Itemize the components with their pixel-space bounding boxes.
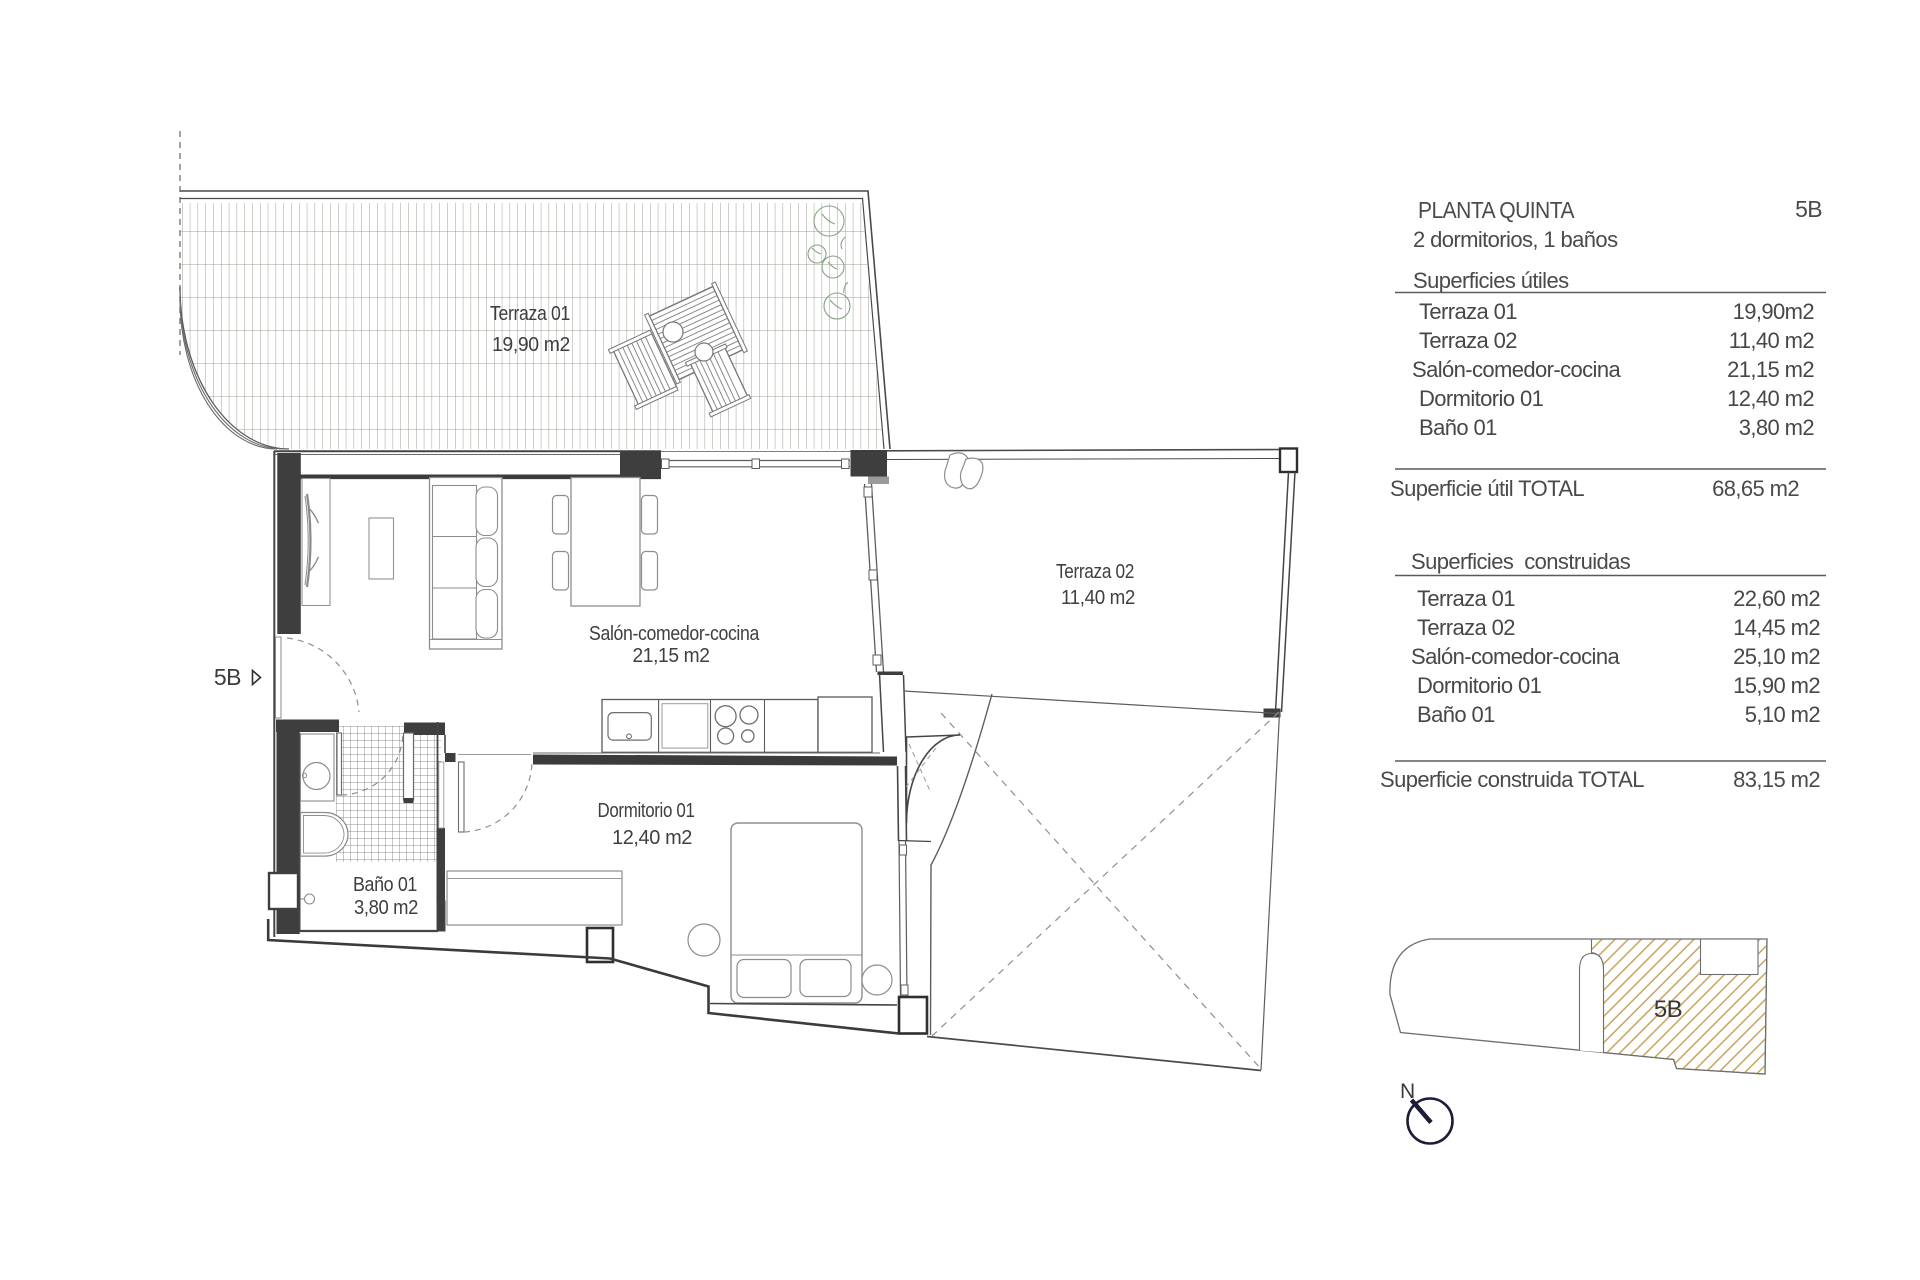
- svg-text:21,15 m2: 21,15 m2: [1727, 357, 1814, 382]
- svg-text:11,40 m2: 11,40 m2: [1061, 587, 1135, 609]
- svg-text:Terraza 02: Terraza 02: [1417, 615, 1515, 640]
- svg-text:Dormitorio 01: Dormitorio 01: [598, 800, 695, 822]
- svg-text:25,10 m2: 25,10 m2: [1733, 644, 1820, 669]
- svg-text:11,40 m2: 11,40 m2: [1729, 328, 1815, 353]
- svg-text:Salón-comedor-cocina: Salón-comedor-cocina: [1411, 644, 1620, 669]
- svg-text:Terraza 02: Terraza 02: [1056, 561, 1134, 583]
- svg-text:22,60 m2: 22,60 m2: [1733, 586, 1820, 611]
- svg-text:Terraza 01: Terraza 01: [490, 303, 570, 325]
- svg-text:5,10 m2: 5,10 m2: [1745, 702, 1821, 727]
- svg-text:Salón-comedor-cocina: Salón-comedor-cocina: [1412, 357, 1621, 382]
- svg-text:Terraza 02: Terraza 02: [1419, 328, 1517, 353]
- svg-text:3,80 m2: 3,80 m2: [1739, 415, 1815, 440]
- svg-text:68,65 m2: 68,65 m2: [1712, 476, 1799, 501]
- svg-text:19,90m2: 19,90m2: [1733, 299, 1815, 324]
- svg-text:Dormitorio 01: Dormitorio 01: [1419, 386, 1544, 411]
- svg-text:3,80 m2: 3,80 m2: [354, 897, 418, 919]
- svg-text:Terraza 01: Terraza 01: [1419, 299, 1517, 324]
- svg-text:Salón-comedor-cocina: Salón-comedor-cocina: [589, 623, 760, 645]
- svg-text:19,90 m2: 19,90 m2: [492, 334, 570, 356]
- svg-text:Superficie construida TOTAL: Superficie construida TOTAL: [1380, 767, 1644, 792]
- svg-text:Baño 01: Baño 01: [353, 874, 417, 896]
- svg-text:21,15 m2: 21,15 m2: [633, 645, 710, 667]
- svg-text:Terraza 01: Terraza 01: [1417, 586, 1515, 611]
- svg-text:Baño 01: Baño 01: [1419, 415, 1497, 440]
- svg-text:12,40 m2: 12,40 m2: [612, 827, 692, 849]
- svg-text:5B: 5B: [214, 664, 241, 690]
- svg-text:83,15 m2: 83,15 m2: [1733, 767, 1820, 792]
- svg-text:5B: 5B: [1654, 996, 1682, 1023]
- svg-text:Superficies construidas: Superficies construidas: [1411, 549, 1631, 574]
- svg-text:Superficies útiles: Superficies útiles: [1413, 268, 1569, 293]
- svg-text:PLANTA QUINTA: PLANTA QUINTA: [1418, 197, 1575, 223]
- svg-text:Dormitorio 01: Dormitorio 01: [1417, 673, 1542, 698]
- svg-text:14,45 m2: 14,45 m2: [1733, 615, 1820, 640]
- svg-text:15,90 m2: 15,90 m2: [1733, 673, 1820, 698]
- svg-text:Superficie útil TOTAL: Superficie útil TOTAL: [1390, 476, 1584, 501]
- svg-text:5B: 5B: [1795, 196, 1822, 222]
- svg-text:Baño 01: Baño 01: [1417, 702, 1495, 727]
- svg-text:2 dormitorios, 1 baños: 2 dormitorios, 1 baños: [1413, 227, 1618, 252]
- svg-text:12,40 m2: 12,40 m2: [1727, 386, 1814, 411]
